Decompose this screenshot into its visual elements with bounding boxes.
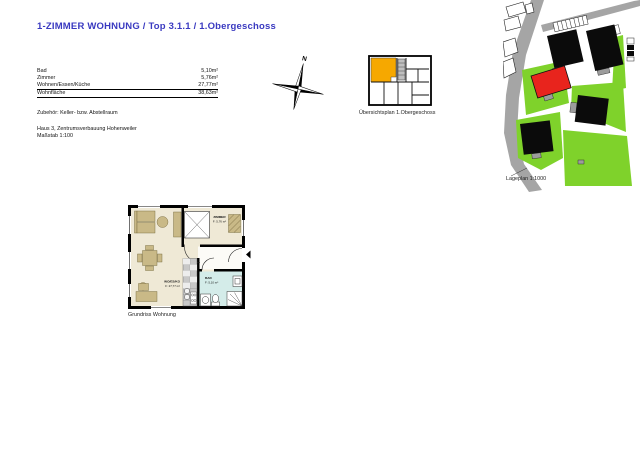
row-label: Zimmer xyxy=(37,75,55,82)
row-value: 5,10m² xyxy=(201,68,218,75)
overview-caption: Übersichtsplan 1.Obergeschoss xyxy=(359,110,435,116)
row-label: Bad xyxy=(37,68,47,75)
row-value: 27,77m² xyxy=(198,82,218,89)
table-row-total: Wohnfläche 38,63m² xyxy=(37,90,218,98)
kitchen-unit xyxy=(183,259,197,307)
note-accessories: Zubehör: Keller- bzw. Abstellraum xyxy=(37,110,118,117)
north-arrow: N xyxy=(268,52,330,118)
table-row: Zimmer 5,76m² xyxy=(37,75,218,82)
entrance-arrow-icon xyxy=(246,251,251,259)
row-label: Wohnen/Essen/Küche xyxy=(37,82,90,89)
page-title: 1-ZIMMER WOHNUNG / Top 3.1.1 / 1.Oberges… xyxy=(37,21,276,32)
plan-sheet: 1-ZIMMER WOHNUNG / Top 3.1.1 / 1.Oberges… xyxy=(0,0,640,453)
floorplan-caption: Grundriss Wohnung xyxy=(128,312,176,318)
row-value: 5,76m² xyxy=(201,75,218,82)
zimmer-area: F: 5,76 m² xyxy=(213,219,226,223)
row-value: 38,63m² xyxy=(198,90,218,97)
apartment-floor-plan: ZIMMER F: 5,76 m² WO/ES/KO F: 27,77 m² B… xyxy=(126,202,253,314)
bed xyxy=(185,212,210,239)
stair-core xyxy=(398,59,405,80)
north-label: N xyxy=(301,55,307,63)
note-project: Haus 3, Zentrumsverbauung Hohenweiler xyxy=(37,126,137,133)
wohnen-label: WO/ES/KO xyxy=(164,280,180,284)
siteplan-caption: Lageplan 1:1000 xyxy=(506,176,546,182)
bad-area: F: 5,10 m² xyxy=(205,280,218,284)
table-row: Bad 5,10m² xyxy=(37,68,218,75)
wohnen-area: F: 27,77 m² xyxy=(165,284,180,288)
table-row: Wohnen/Essen/Küche 27,77m² xyxy=(37,82,218,90)
note-scale: Maßstab 1:100 xyxy=(37,133,73,140)
overview-plan xyxy=(368,55,432,108)
area-table: Bad 5,10m² Zimmer 5,76m² Wohnen/Essen/Kü… xyxy=(37,68,218,98)
site-plan xyxy=(503,0,640,192)
row-label: Wohnfläche xyxy=(37,90,65,97)
